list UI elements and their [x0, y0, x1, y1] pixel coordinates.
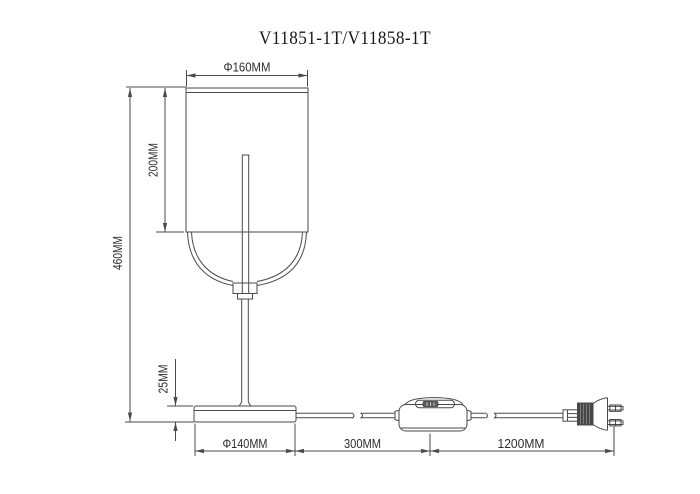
- socket-outline: [233, 283, 257, 299]
- stem-outline: [239, 299, 251, 406]
- lamp-stem: [239, 299, 251, 406]
- shade-height-label: 200MM: [146, 143, 161, 177]
- lamp-arms: [188, 232, 307, 286]
- base-outline: [194, 406, 296, 422]
- cord-lines: [296, 413, 563, 418]
- technical-drawing-canvas: V11851-1T/V11858-1T: [0, 0, 700, 494]
- switch-left-boot: [395, 410, 399, 420]
- dim-lines: [167, 359, 193, 441]
- power-plug: [563, 398, 623, 430]
- inline-switch: [395, 398, 471, 431]
- shade-diameter-label: Φ160MM: [224, 60, 271, 75]
- arrow-base-left: [195, 449, 204, 453]
- plug-pin-bottom: [608, 420, 624, 426]
- arms-outline: [188, 232, 307, 286]
- plug-strain-relief-ribs: [568, 410, 578, 421]
- base-diameter-label: Φ140MM: [223, 436, 268, 451]
- dim-base-height: 25MM: [156, 359, 194, 441]
- lamp-base: [194, 406, 296, 422]
- plug-neck: [578, 403, 594, 425]
- plug-shell: [593, 398, 608, 430]
- arrow-left: [187, 73, 196, 77]
- switch-distance-label: 300MM: [344, 436, 381, 451]
- plug-strain-relief: [563, 410, 578, 421]
- page-title: V11851-1T/V11858-1T: [259, 28, 431, 49]
- arrow-right: [299, 73, 308, 77]
- plug-distance-label: 1200MM: [498, 436, 545, 451]
- base-height-label: 25MM: [156, 365, 171, 394]
- rod-outline: [242, 155, 248, 294]
- dim-shade-diameter: Φ160MM: [187, 60, 308, 87]
- arrow-switch-right: [421, 449, 430, 453]
- power-cord: [296, 413, 563, 418]
- dim-total-height: 460MM: [110, 87, 194, 422]
- arrow-switch-left: [295, 449, 304, 453]
- lamp-rod: [242, 155, 248, 294]
- lamp-socket: [233, 283, 257, 299]
- switch-right-boot: [467, 410, 471, 420]
- plug-pin-top: [608, 405, 624, 411]
- lamp-shade: [186, 88, 308, 232]
- dim-shade-height: 200MM: [146, 88, 185, 232]
- arrow-plug-left: [430, 449, 439, 453]
- arrow-down: [128, 413, 132, 422]
- total-height-label: 460MM: [110, 236, 125, 270]
- switch-body: [399, 405, 467, 432]
- arrow-up: [128, 88, 132, 97]
- arrow-down: [163, 223, 167, 232]
- arrow-up: [163, 88, 167, 97]
- arrow-plug-right: [605, 449, 614, 453]
- arrow-base-right: [286, 449, 295, 453]
- arrow-down: [173, 397, 177, 406]
- shade-outline: [186, 88, 308, 232]
- arrow-up: [173, 422, 177, 431]
